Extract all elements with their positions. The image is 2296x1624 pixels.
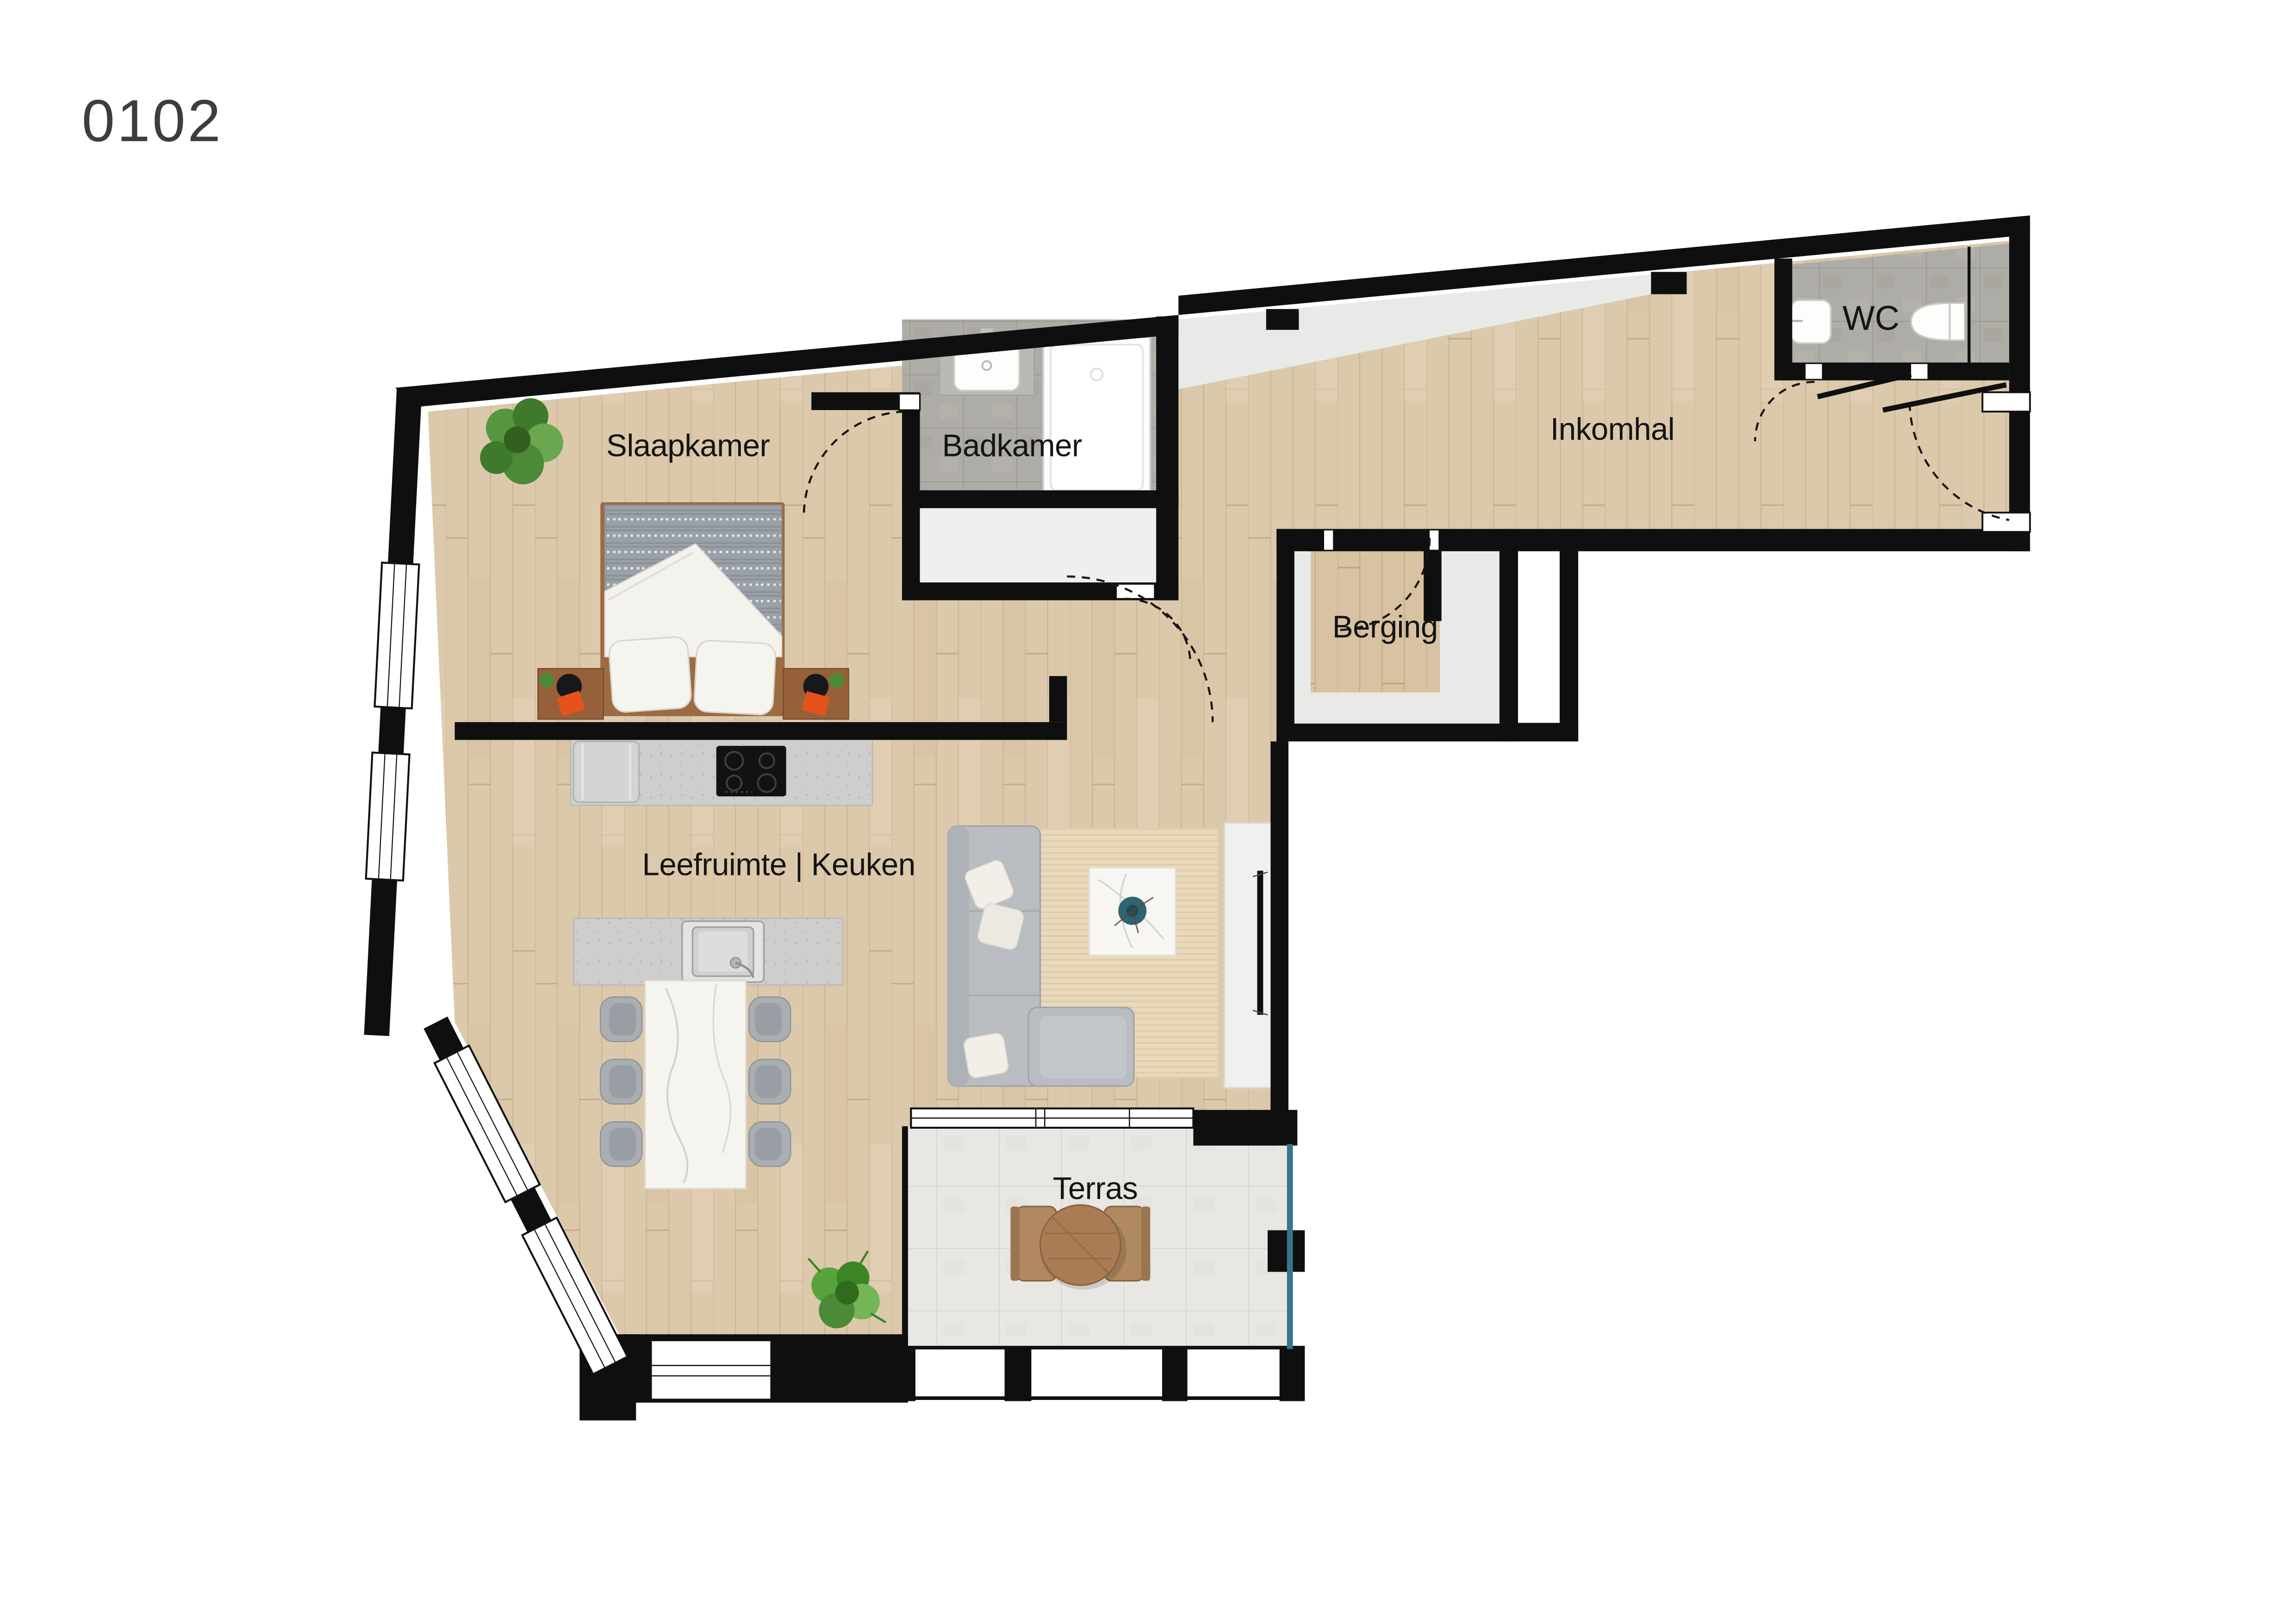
entrance-door-sill-lower [1982,512,2030,532]
wc-door-gap [1911,364,1927,379]
bed-pillow [609,636,692,713]
sofa-pillow [963,1032,1009,1079]
berging-door-gap [1430,531,1438,550]
cooktop [716,746,786,796]
sofa-pillow [977,902,1025,951]
tv-cabinet [1225,823,1275,1087]
shaft-door-sill [1116,584,1154,599]
wall-shaft-right [1561,529,1579,742]
bed-pillow [694,640,776,715]
label-inkomhal: Inkomhal [1550,412,1674,447]
wall-right-lower [2009,532,2030,551]
succulent-icon [829,673,844,688]
nightstand-left [538,668,603,719]
shower-tray [1043,337,1150,498]
wall-bedroom-divider [455,722,1067,740]
succulent-icon [540,673,554,688]
label-wc: WC [1842,299,1899,337]
label-berging: Berging [1332,610,1438,644]
wall-inkomhal-bottom [1276,529,2030,551]
wall-berging-right [1500,529,1518,742]
dining-chair [749,1059,790,1104]
nightstand-right [783,668,848,719]
dining-chair [749,1122,790,1166]
wall-wc-left [1774,258,1792,380]
label-slaapkamer: Slaapkamer [606,428,770,463]
wall-berging-left [1276,529,1294,742]
terrace-railing [887,1346,1305,1401]
dining-chair [749,997,790,1042]
wc-door-gap [1805,364,1822,379]
label-leefruimte: Leefruimte | Keuken [642,847,915,882]
floorplan-page: 0102 Slaapkamer Badkamer Inkomhal WC Ber… [0,0,2296,1624]
unit-number-label: 0102 [82,88,223,154]
double-bed [600,502,784,716]
wc-sink [1791,300,1831,343]
wall-left [364,388,422,1036]
entrance-door-sill-upper [1982,392,2030,412]
island-sink [682,921,764,982]
dining-chair [600,1059,642,1104]
berging-door-gap [1324,531,1333,550]
wc-inner-divider [1967,247,1970,362]
wall-badkamer-divider [902,410,920,508]
wall-living-right [1270,742,1288,1128]
badkamer-door-sill [899,394,920,410]
kitchen-counter [571,738,872,805]
dining-table [645,981,746,1188]
wall-berging-bottom [1276,724,1578,742]
wall-corridor-stub [1049,676,1067,722]
wall-stub [1266,309,1299,330]
window-terrace-band [911,1108,1193,1128]
dining-chair [600,1122,642,1166]
dining-chair [600,997,642,1042]
wall-right-mid [2009,412,2030,514]
floorplan-drawing: 0102 Slaapkamer Badkamer Inkomhal WC Ber… [0,0,2296,1624]
window-bottom [651,1340,771,1399]
wall-stub [1651,272,1686,294]
wall-right-upper [2009,223,2030,394]
tv [1257,871,1263,1015]
label-badkamer: Badkamer [942,428,1082,463]
wall-shaft-right2 [1156,490,1178,600]
terrace-pier-right [1268,1230,1305,1272]
label-terras: Terras [1053,1171,1138,1206]
coffee-table [1089,868,1176,955]
toilet [1911,303,1965,340]
wall-terrace-left [902,1126,908,1346]
terrace-glass-balustrade [1287,1144,1293,1349]
wall-badkamer-right [1156,317,1178,508]
shaft-void [1517,544,1560,724]
kitchen-island [573,918,842,985]
wall-badkamer-bottom [902,490,1178,508]
